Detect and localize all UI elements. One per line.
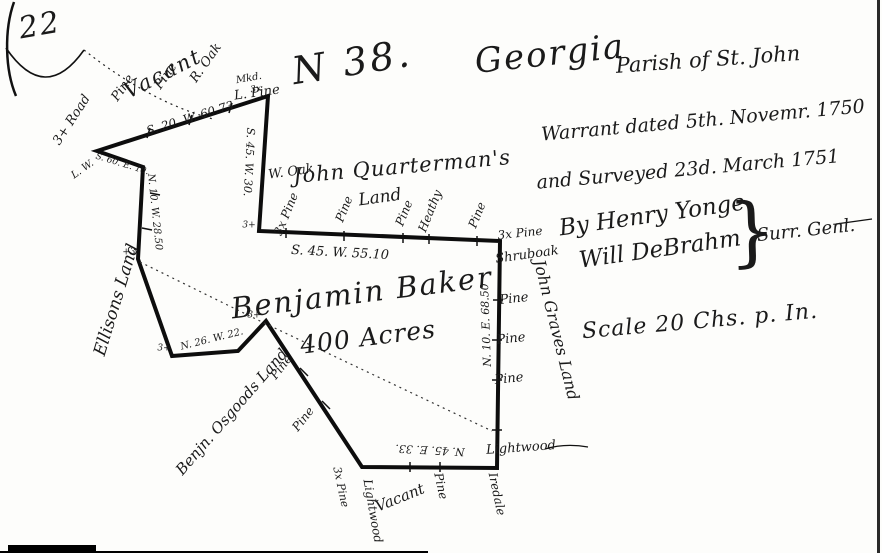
- scan-edge-right: [877, 0, 880, 553]
- bearing-west-upper-line: S. 45. W. 30.: [242, 127, 257, 196]
- corner-mark-notch-lower: 3+: [157, 345, 170, 354]
- corner-stamp-bracket: [7, 2, 16, 96]
- corner-mark-notch-upper: +3: [122, 249, 135, 258]
- corner-stamp-swash: [6, 48, 84, 77]
- bearing-south-line: N. 45. E. 33.: [395, 443, 465, 458]
- tree-east-pine-1: Pine: [499, 291, 529, 307]
- page-number: 22: [17, 8, 64, 45]
- corner-mark-diagonal: 3+: [247, 312, 260, 321]
- tree-east-pine-2: Pine: [496, 331, 526, 347]
- corner-mark-top: 3x: [250, 85, 262, 96]
- survey-plat-document: 22 N 38. Georgia Parish of St. John Warr…: [0, 0, 882, 553]
- tree-east-pine-3: Pine: [494, 371, 524, 387]
- bearing-east-line: N. 10. E. 68.50: [479, 283, 493, 367]
- corner-mark-west: 3+: [242, 222, 255, 231]
